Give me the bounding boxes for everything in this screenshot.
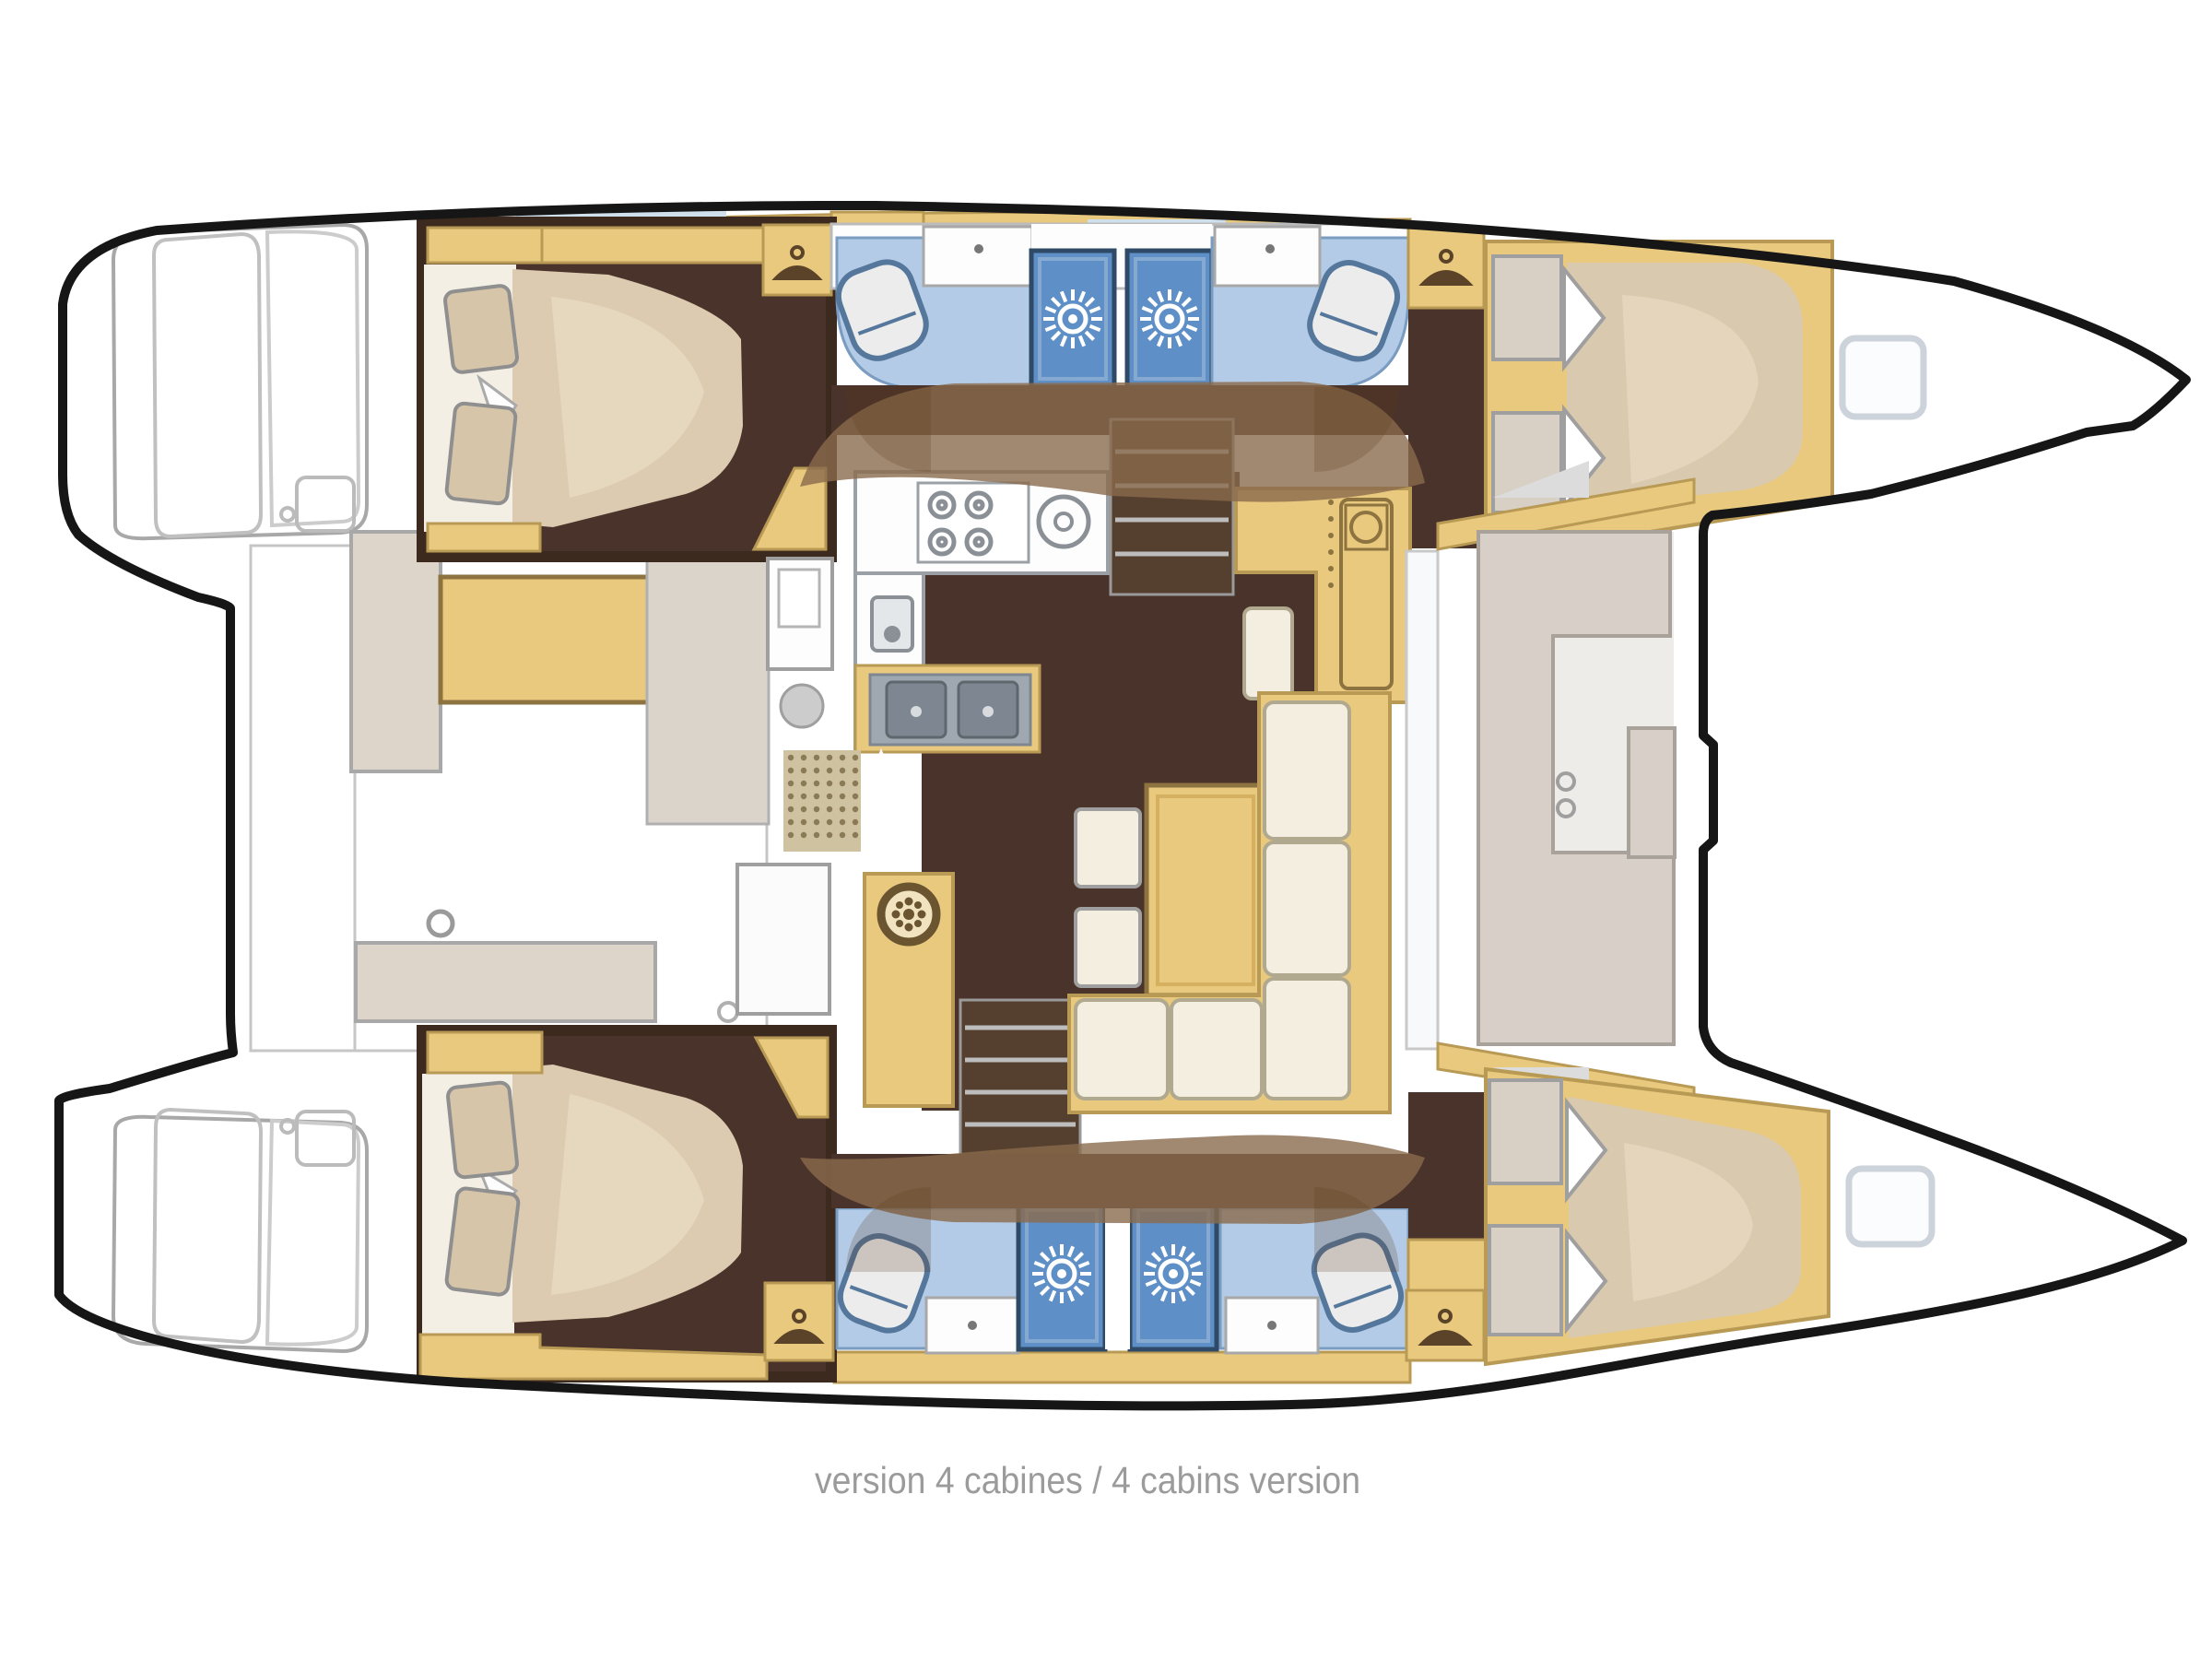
svg-text:version 4 cabines / 4 cabins v: version 4 cabines / 4 cabins version — [815, 1459, 1360, 1501]
